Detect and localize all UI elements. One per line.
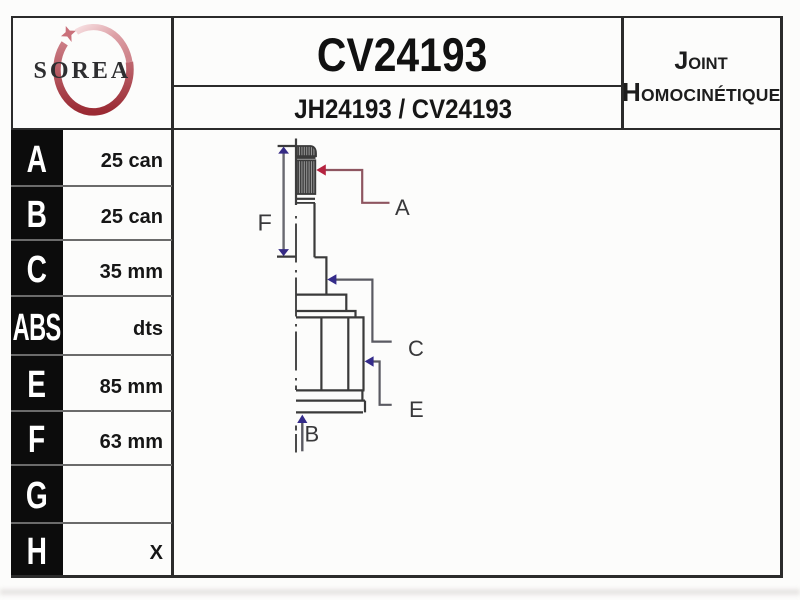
svg-text:F: F [258, 210, 272, 236]
svg-text:A: A [395, 195, 410, 220]
svg-text:C: C [408, 336, 424, 361]
svg-text:E: E [409, 397, 424, 422]
svg-text:B: B [305, 422, 320, 447]
